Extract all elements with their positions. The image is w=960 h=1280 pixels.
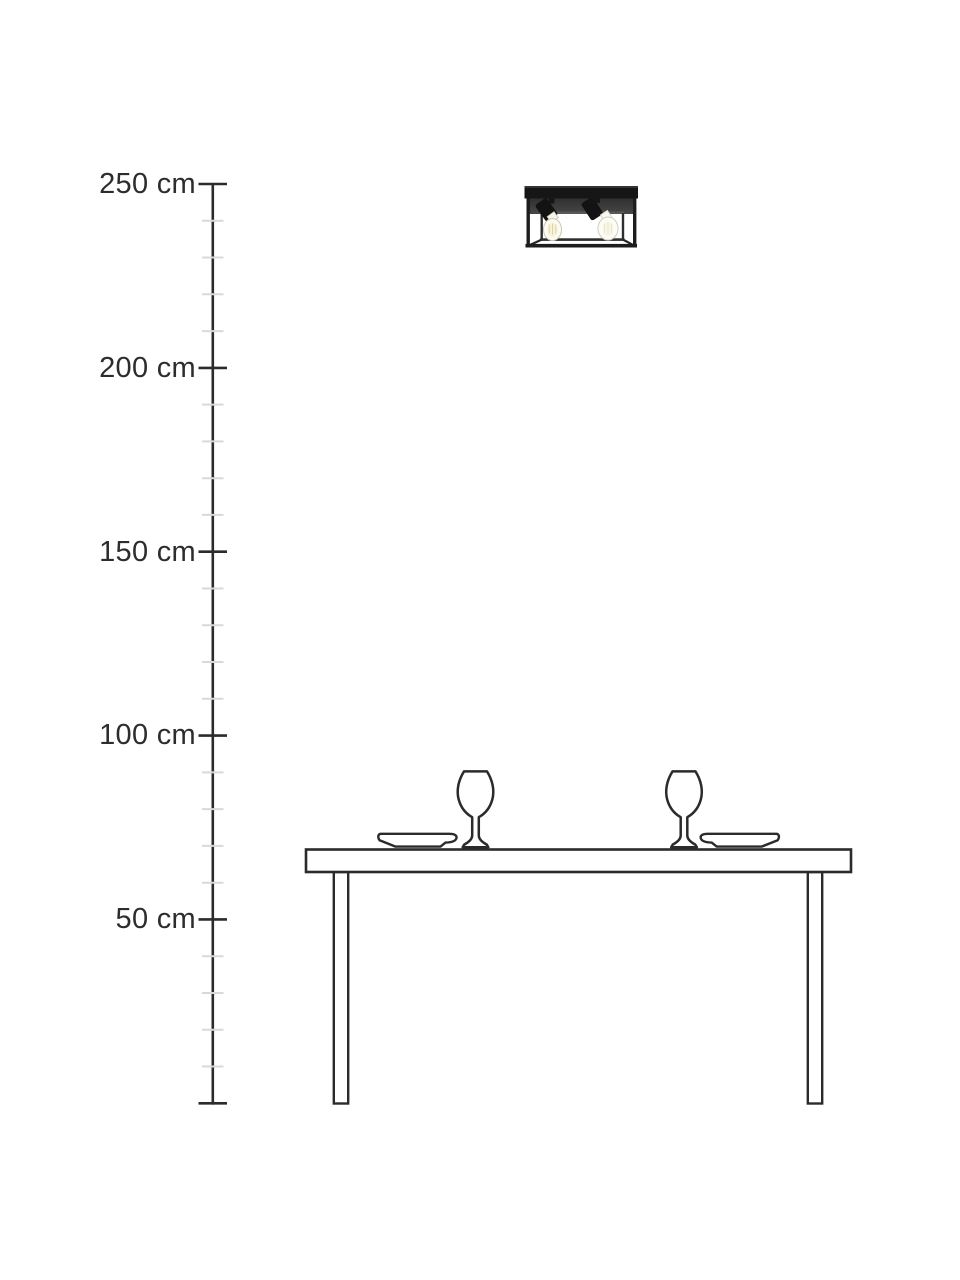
ceiling-lamp	[525, 186, 639, 248]
wine-glass-right	[666, 771, 702, 847]
table-left-leg	[334, 872, 348, 1104]
ruler-label-100cm: 100 cm	[99, 716, 196, 754]
lamp-back-right-bar	[622, 213, 624, 240]
table-top	[306, 850, 851, 873]
height-ruler	[199, 183, 228, 1105]
ruler-label-150cm: 150 cm	[99, 533, 196, 571]
lamp-front-left-bar	[527, 197, 530, 247]
plate-right	[701, 834, 779, 847]
dining-table-scene	[306, 771, 851, 1103]
ruler-label-200cm: 200 cm	[99, 349, 196, 387]
lamp-front-right-bar	[633, 197, 636, 247]
lamp-back-left-bar	[541, 213, 543, 240]
ruler-label-250cm: 250 cm	[99, 165, 196, 203]
wine-glass-left	[458, 771, 494, 847]
table-right-leg	[808, 872, 822, 1104]
right-bulb	[598, 210, 618, 240]
ruler-label-50cm: 50 cm	[116, 900, 196, 938]
plate-left	[378, 834, 456, 847]
lamp-canopy-highlight	[525, 186, 639, 188]
dimension-diagram-page: 250 cm 200 cm 150 cm 100 cm 50 cm	[0, 0, 960, 1280]
lamp-front-bottom-bar	[526, 244, 638, 248]
